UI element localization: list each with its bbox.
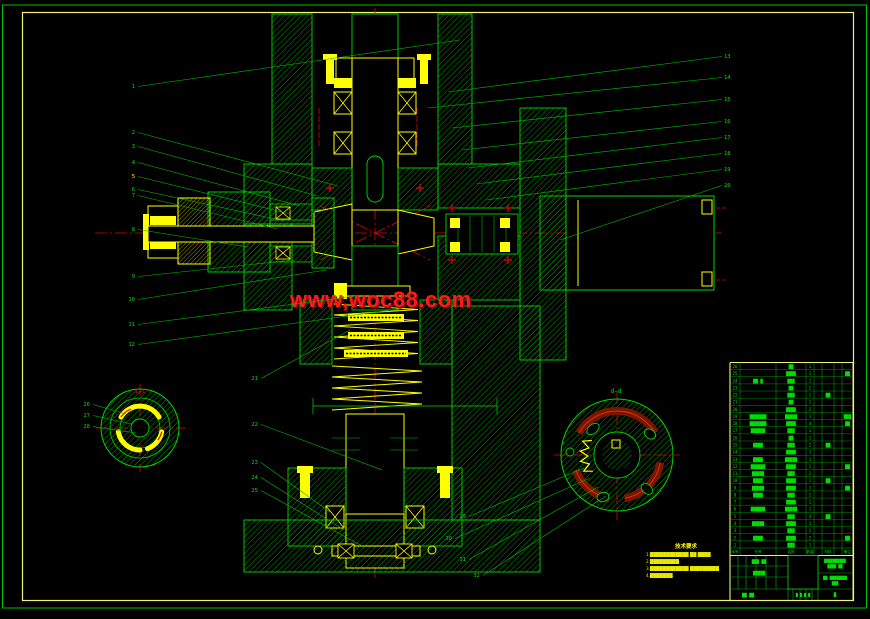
bom-cell-qty: 1	[809, 485, 812, 490]
motor-outline	[566, 196, 714, 290]
bom-cell-code: ████	[752, 478, 763, 483]
bom-cell-qty: 1	[809, 507, 812, 512]
bom-cell-n: 9	[734, 485, 737, 490]
bom-cell-name: ███	[786, 378, 795, 383]
bom-cell-qty: 2	[809, 385, 812, 390]
tb-text-e1: ██-████████	[822, 575, 848, 580]
bom-header-cell: 序号	[731, 549, 739, 554]
balloon-number: 30	[445, 536, 452, 542]
bom-cell-n: 7	[734, 500, 737, 505]
bom-cell-name: ████	[785, 371, 796, 376]
bom-cell-n: 10	[733, 478, 738, 483]
bom-cell-code: ██████	[750, 428, 766, 433]
balloon-number: 28	[83, 424, 90, 430]
cap-bolt-right	[420, 58, 428, 84]
bom-cell-code: ███████	[749, 421, 767, 426]
bom-cell-qty: 1	[809, 528, 812, 533]
left-section-label: I—I	[135, 388, 146, 395]
bom-cell-n: 12	[733, 464, 738, 469]
bom-cell-n: 18	[733, 421, 738, 426]
bom-cell-n: 24	[733, 378, 738, 383]
balloon-number: 7	[132, 193, 135, 199]
cad-drawing: www,woc88.com www,woc88.com I—I d—d 技术要求…	[0, 0, 870, 619]
right-detail-hub-hatch	[602, 440, 632, 470]
bom-cell-qty: 4	[809, 514, 812, 519]
title-block: ███ ██ █████ ██ ██ ██████████ ████ ██ ██…	[730, 556, 853, 601]
bom-header-cell: 材料	[824, 549, 832, 554]
bom-cell-name: █████	[784, 414, 798, 419]
balloon-number: 8	[132, 227, 135, 233]
balloon-number: 2	[132, 130, 135, 136]
bom-cell-n: 6	[734, 507, 737, 512]
bom-cell-rem: ██	[844, 464, 850, 469]
bom-cell-qty: 1	[809, 457, 812, 462]
bom-cell-n: 25	[733, 371, 738, 376]
balloon-number: 31	[459, 557, 466, 563]
bom-cell-n: 16	[733, 435, 738, 440]
balloon-number: 20	[724, 183, 731, 189]
bom-cell-qty: 4	[809, 421, 812, 426]
balloon-number: 10	[128, 297, 135, 303]
bom-cell-code: █████	[751, 521, 765, 526]
bom-cell-name: █████	[784, 457, 798, 462]
bom-cell-rem: ██	[844, 535, 850, 540]
bom-cell-name: ████	[785, 500, 796, 505]
locknut-right	[398, 78, 416, 88]
block-bolt-left-head	[297, 466, 313, 473]
balloon-number: 24	[251, 475, 258, 481]
bom-cell-name: ██	[788, 364, 794, 369]
bom-cell-qty: 1	[809, 464, 812, 469]
coupling-key-top	[150, 216, 176, 225]
bom-cell-qty: 1	[809, 450, 812, 455]
bom-cell-mat: ██	[825, 393, 831, 398]
balloon-number: 16	[724, 119, 731, 125]
bom-cell-name: ███	[786, 492, 795, 497]
bom-cell-name: ███	[786, 393, 795, 398]
bom-header-cell: 名称	[787, 549, 795, 554]
keyway-slot	[367, 156, 383, 202]
bom-cell-n: 19	[733, 414, 738, 419]
bom-cell-name: ████	[785, 421, 796, 426]
bom-cell-n: 1	[734, 542, 737, 547]
bom-cell-name: ███	[786, 514, 795, 519]
bom-cell-qty: 2	[809, 471, 812, 476]
tb-text-d1: ██████████	[823, 558, 846, 563]
bom-cell-n: 26	[733, 364, 738, 369]
bom-cell-qty: 1	[809, 393, 812, 398]
balloon-number: 12	[128, 342, 135, 348]
watermark: www,woc88.com www,woc88.com	[289, 287, 473, 314]
housing-left-column	[272, 14, 312, 164]
block-bolt-right	[440, 472, 450, 498]
balloon-number: 25	[251, 488, 258, 494]
left-flange	[312, 198, 334, 268]
bom-cell-code: ████	[752, 535, 763, 540]
balloon-number: 27	[83, 413, 90, 419]
balloon-number: 21	[251, 376, 258, 382]
bearing-mid-right	[398, 132, 416, 154]
balloon-number: 32	[473, 573, 480, 579]
bom-cell-name: ███	[786, 542, 795, 547]
bom-cell-mat: ██	[825, 478, 831, 483]
cap-bolt-left-head	[323, 54, 337, 60]
bom-cell-name: ██	[788, 435, 794, 440]
leader-line	[468, 138, 722, 169]
bom-cell-name: ██	[788, 400, 794, 405]
bom-cell-n: 2	[734, 535, 737, 540]
balloon-number: 14	[724, 75, 731, 81]
tb-text-a: ███ ██	[751, 559, 767, 564]
bom-cell-name: ████	[785, 521, 796, 526]
bom-cell-qty: 1	[809, 364, 812, 369]
balloon-number: 19	[724, 167, 731, 173]
bom-cell-mat: ██	[825, 443, 831, 448]
bom-cell-code: ██████	[750, 464, 766, 469]
bearing-mid-left	[334, 132, 352, 154]
leader-line	[462, 122, 722, 151]
spindle-top	[352, 14, 398, 58]
housing-right-step	[438, 164, 520, 208]
tb-text-c: ██ ██	[741, 593, 755, 598]
bom-cell-code: ███████	[749, 414, 767, 419]
bom-header-cell: 数量	[806, 549, 814, 554]
bom-cell-qty: 1	[809, 414, 812, 419]
balloon-number: 5	[132, 174, 135, 180]
tb-text-d2: ████ ██	[826, 564, 843, 569]
right-section-detail	[561, 399, 673, 511]
balloon-number: 11	[128, 322, 135, 328]
balloon-number: 22	[251, 422, 258, 428]
bom-cell-name: █████	[784, 507, 798, 512]
left-shaft-view	[143, 192, 334, 272]
bom-cell-n: 5	[734, 514, 737, 519]
bom-cell-code: ████	[752, 457, 763, 462]
bom-cell-rem: ██	[844, 485, 850, 490]
block-bolt-right-head	[437, 466, 453, 473]
cad-canvas: www,woc88.com www,woc88.com I—I d—d 技术要求…	[0, 0, 870, 619]
bom-cell-qty: 1	[809, 378, 812, 383]
leader-line	[448, 57, 722, 93]
bom-cell-n: 20	[733, 407, 738, 412]
bom-cell-name: ███	[786, 528, 795, 533]
notes-block: 技术要求 1.████████████ ██ ████. 2.█████████…	[646, 542, 720, 579]
notes-line-2: 2.█████████.	[646, 559, 680, 565]
spring-bands	[344, 314, 408, 357]
bom-cell-qty: 1	[809, 521, 812, 526]
adapter-plate	[540, 196, 566, 290]
bom-cell-n: 13	[733, 457, 738, 462]
housing-right-column	[438, 14, 472, 164]
bom-cell-n: 3	[734, 528, 737, 533]
bom-cell-mat: ██	[825, 514, 831, 519]
right-section-label: d—d	[611, 388, 622, 395]
bom-cell-code: ██████	[750, 507, 766, 512]
bom-header-cell: 备注	[844, 549, 852, 554]
bom-cell-n: 22	[733, 393, 738, 398]
bom-cell-name: ████	[785, 478, 796, 483]
balloon-number: 29	[459, 514, 466, 520]
bom-cell-qty: 2	[809, 492, 812, 497]
bom-cell-qty: 1	[809, 428, 812, 433]
balloon-number: 3	[132, 144, 135, 150]
bom-cell-qty: 1	[809, 542, 812, 547]
bom-cell-n: 8	[734, 492, 737, 497]
cap-bolt-right-head	[417, 54, 431, 60]
tb-text-e2: ███	[831, 581, 839, 586]
bom-cell-name: ███	[786, 471, 795, 476]
locknut-left	[334, 78, 352, 88]
bom-cell-n: 21	[733, 400, 738, 405]
bom-cell-qty: 1	[809, 400, 812, 405]
bom-cell-name: ███	[786, 443, 795, 448]
balloon-number: 18	[724, 151, 731, 157]
bom-cell-n: 23	[733, 385, 738, 390]
bom-cell-n: 15	[733, 443, 738, 448]
notes-title: 技术要求	[675, 542, 698, 550]
tb-text-g: █ █ █ █	[795, 592, 811, 597]
right-lower-mass	[452, 306, 540, 520]
bom-cell-n: 14	[733, 450, 738, 455]
cap-bolt-left	[326, 58, 334, 84]
bom-cell-name: ██	[788, 385, 794, 390]
bearing-top-right	[398, 92, 416, 114]
bom-cell-qty: 1	[809, 435, 812, 440]
bom-cell-n: 4	[734, 521, 737, 526]
balloon-number: 26	[83, 402, 90, 408]
bom-cell-qty: 1	[809, 478, 812, 483]
bom-cell-n: 17	[733, 428, 738, 433]
bom-cell-rem: ██	[844, 371, 850, 376]
bom-cell-name: ████	[785, 407, 796, 412]
section-labels: I—I d—d	[135, 388, 622, 395]
title-name-cell	[788, 556, 818, 590]
leader-line	[452, 100, 722, 129]
balloon-number: 4	[132, 160, 136, 166]
bom-cell-code: █████	[751, 485, 765, 490]
bom-cell-qty: 2	[809, 443, 812, 448]
balloon-number: 1	[132, 84, 135, 90]
bom-cell-rem: ██	[844, 421, 850, 426]
bom-cell-code: █████	[751, 471, 765, 476]
balloon-number: 9	[132, 274, 135, 280]
bom-header-cell: 代号	[754, 549, 762, 554]
bom-cell-code: ████	[752, 443, 763, 448]
balloon-number: 17	[724, 135, 731, 141]
bom-cell-n: 11	[733, 471, 738, 476]
bearing-top-left	[334, 92, 352, 114]
input-shaft	[148, 226, 314, 242]
bom-cell-qty: 2	[809, 407, 812, 412]
balloon-number: 15	[724, 97, 731, 103]
notes-line-1: 1.████████████ ██ ████.	[646, 552, 712, 558]
bom-cell-rem: ███	[843, 414, 852, 419]
bom-cell-qty: 2	[809, 535, 812, 540]
bom-cell-name: ████	[785, 485, 796, 490]
bom-cell-name: ████	[785, 464, 796, 469]
tb-text-f: █	[833, 592, 837, 597]
left-section-detail	[101, 389, 179, 467]
bevel-gear-right	[398, 210, 434, 254]
notes-line-3: 3.████████████ █████████.	[646, 566, 720, 572]
watermark-text: www,woc88.com	[289, 287, 472, 312]
screw-thread	[332, 366, 422, 410]
notes-line-4: 4.███████.	[646, 573, 674, 579]
lower-shaft	[346, 414, 404, 514]
gland-right	[398, 168, 438, 210]
left-detail-bore	[131, 419, 149, 437]
balloon-number: 13	[724, 54, 731, 60]
bom-cell-name: ███	[786, 428, 795, 433]
bom-cell-name: ████	[785, 535, 796, 540]
bom-cell-name: ████	[785, 450, 796, 455]
balloon-number: 23	[251, 460, 258, 466]
bom-cell-code: ██ █	[752, 378, 763, 383]
bom-cell-qty: 1	[809, 500, 812, 505]
bom-cell-qty: 1	[809, 371, 812, 376]
bom-cell-code: ████	[752, 492, 763, 497]
tb-text-b: █████	[752, 571, 766, 576]
